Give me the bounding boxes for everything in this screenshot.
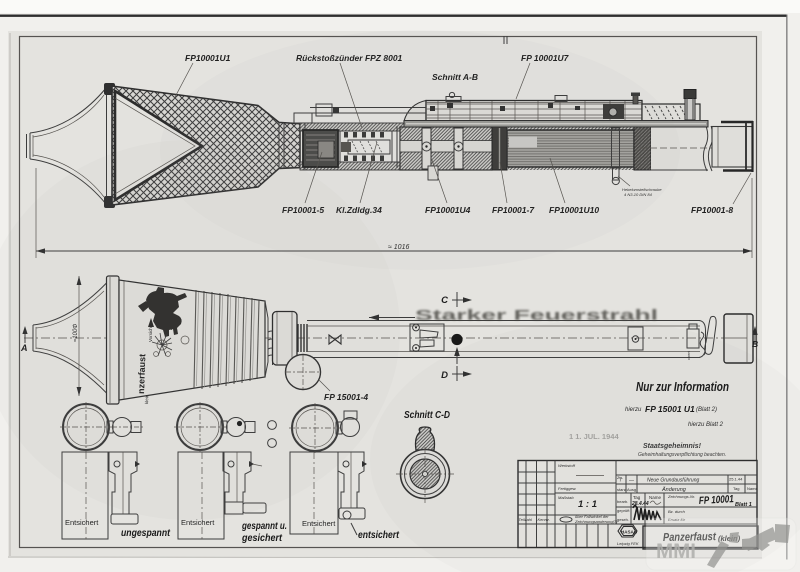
svg-text:geseh.: geseh.	[617, 517, 629, 522]
svg-text:C: C	[441, 295, 448, 306]
svg-text:Teilzahl: Teilzahl	[519, 517, 533, 522]
svg-text:geprüft: geprüft	[617, 508, 630, 513]
svg-text:Kennz.: Kennz.	[538, 517, 550, 522]
svg-text:FP10001U10: FP10001U10	[549, 205, 599, 215]
svg-text:Rückstoßzünder FPZ 8001: Rückstoßzünder FPZ 8001	[296, 53, 403, 63]
svg-text:FP 15001 U1: FP 15001 U1	[645, 404, 695, 414]
svg-text:gespannt u.: gespannt u.	[241, 521, 287, 532]
svg-text:chert: chert	[686, 350, 691, 360]
svg-text:Änderung: Änderung	[661, 486, 687, 493]
svg-text:Nur zur Information: Nur zur Information	[636, 380, 729, 394]
svg-text:Tag: Tag	[733, 486, 739, 491]
svg-text:Werkstoff: Werkstoff	[558, 463, 576, 468]
svg-text:Bz. durch: Bz. durch	[668, 509, 686, 514]
svg-text:Maßstab: Maßstab	[558, 495, 574, 500]
svg-text:Entsichert: Entsichert	[302, 519, 336, 528]
svg-text:≈100Φ: ≈100Φ	[73, 324, 79, 342]
svg-text:ungespannt: ungespannt	[121, 528, 171, 539]
svg-text:Blatt 1: Blatt 1	[735, 502, 752, 508]
svg-text:Tag: Tag	[633, 495, 641, 500]
svg-text:bearb.: bearb.	[617, 499, 628, 504]
svg-text:—: —	[629, 478, 634, 484]
svg-text:Neue Grundausführung: Neue Grundausführung	[647, 478, 699, 484]
svg-text:Leipzig FEK: Leipzig FEK	[617, 541, 639, 546]
svg-text:1 1. JUL. 1944: 1 1. JUL. 1944	[569, 432, 619, 441]
svg-text:FP10001U1: FP10001U1	[185, 53, 231, 63]
svg-text:gesichert: gesichert	[241, 533, 282, 544]
svg-text:stand: stand	[617, 487, 627, 492]
svg-text:MMI: MMI	[656, 540, 696, 563]
svg-text:A: A	[20, 343, 28, 353]
svg-text:hierzu: hierzu	[625, 407, 642, 413]
svg-text:FP10001U4: FP10001U4	[425, 205, 471, 215]
svg-text:1 : 1: 1 : 1	[578, 499, 597, 510]
svg-text:Vorsicht!: Vorsicht!	[148, 325, 153, 342]
svg-text:FP 10001: FP 10001	[699, 493, 735, 507]
svg-text:HASAG: HASAG	[621, 530, 638, 535]
svg-text:25.1.44: 25.1.44	[729, 477, 743, 482]
svg-text:Starker Feuerstrahl: Starker Feuerstrahl	[415, 308, 658, 324]
svg-text:nzerfaust: nzerfaust	[136, 354, 147, 394]
svg-text:Name: Name	[649, 495, 662, 500]
svg-text:FP 10001U7: FP 10001U7	[521, 53, 570, 63]
svg-text:≈ 1016: ≈ 1016	[388, 244, 409, 251]
svg-text:Schnitt A-B: Schnitt A-B	[432, 72, 478, 82]
svg-text:Geheimhaltungsverpflichtung be: Geheimhaltungsverpflichtung beachten.	[638, 452, 726, 458]
svg-text:klein: klein	[144, 394, 149, 404]
svg-text:Schnitt C-D: Schnitt C-D	[404, 410, 450, 421]
svg-text:FP10001-5: FP10001-5	[282, 205, 324, 215]
svg-text:D: D	[441, 370, 448, 381]
svg-text:Zu-: Zu-	[617, 475, 624, 480]
svg-text:Entsichert: Entsichert	[181, 518, 215, 527]
svg-text:entsichert: entsichert	[358, 530, 400, 541]
svg-text:hierzu Blatt 2: hierzu Blatt 2	[688, 422, 724, 428]
svg-text:Zeichnungsanderung(?): Zeichnungsanderung(?)	[574, 519, 618, 524]
svg-text:Fertiggew.: Fertiggew.	[558, 486, 577, 491]
svg-text:FP10001-8: FP10001-8	[691, 205, 733, 215]
svg-text:Kl.Zdldg.34: Kl.Zdldg.34	[336, 205, 382, 215]
svg-text:(Blatt 2): (Blatt 2)	[696, 407, 717, 413]
svg-text:FP 15001-4: FP 15001-4	[324, 392, 368, 402]
svg-text:Name: Name	[747, 486, 758, 491]
svg-text:Ausg.: Ausg.	[627, 487, 637, 492]
svg-text:Zeichnungs-Nr.: Zeichnungs-Nr.	[667, 494, 695, 499]
svg-text:Staatsgeheimnis!: Staatsgeheimnis!	[643, 443, 702, 450]
svg-text:FP10001-7: FP10001-7	[492, 205, 535, 215]
svg-text:B: B	[752, 339, 758, 349]
svg-text:Entsichert: Entsichert	[65, 518, 99, 527]
svg-text:4 N3-10 DIN 84: 4 N3-10 DIN 84	[624, 192, 653, 197]
